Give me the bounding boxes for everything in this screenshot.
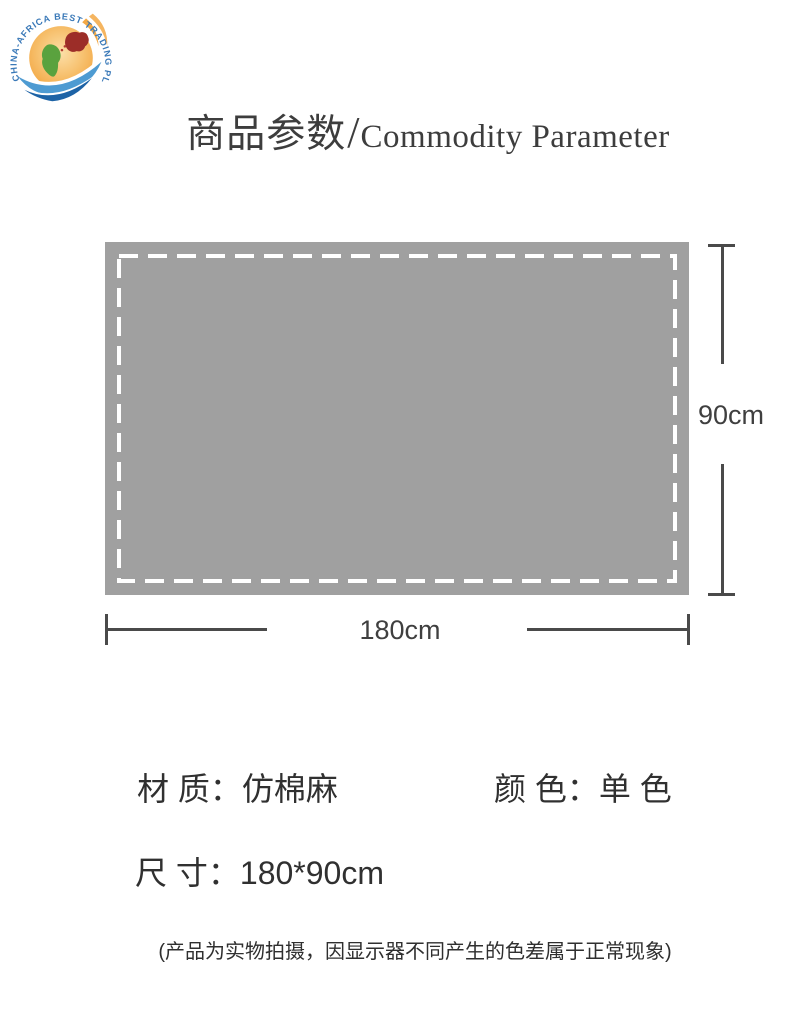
page-title-en: Commodity Parameter (361, 119, 670, 155)
spec-size-value: 180*90cm (240, 855, 384, 891)
height-dim-line-upper (721, 244, 724, 364)
route-dot-icon (64, 45, 67, 48)
page-title-zh: 商品参数 (186, 113, 346, 156)
spec-color: 颜 色：单 色 (494, 771, 672, 807)
stitch-border (105, 242, 689, 595)
width-dim-line-right (527, 628, 687, 631)
spec-color-label: 颜 色： (494, 771, 599, 807)
spec-size: 尺 寸：180*90cm (135, 855, 384, 891)
width-dim-line-left (105, 628, 267, 631)
spec-color-value: 单 色 (599, 771, 672, 807)
width-dim-label: 180cm (340, 616, 460, 644)
fabric-swatch (105, 242, 689, 595)
spec-material: 材 质：仿棉麻 (137, 771, 338, 807)
title-separator: / (347, 108, 359, 157)
platform-logo-emblem: CHINA-AFRICA BEST TRADING PLATFORM (8, 2, 114, 108)
width-dim-right-cap (687, 614, 690, 645)
spec-material-value: 仿棉麻 (242, 771, 338, 807)
page-title: 商品参数/Commodity Parameter (0, 103, 800, 159)
height-dim-line-lower (721, 464, 724, 596)
height-dim-label: 90cm (698, 401, 758, 429)
height-dim-bottom-cap (708, 593, 735, 596)
product-parameter-page: CHINA-AFRICA BEST TRADING PLATFORM 商品参数/… (0, 0, 800, 1027)
spec-material-label: 材 质： (137, 771, 242, 807)
platform-logo: CHINA-AFRICA BEST TRADING PLATFORM (8, 2, 114, 108)
dashed-stitch-line (119, 256, 675, 581)
disclaimer-note: (产品为实物拍摄，因显示器不同产生的色差属于正常现象) (0, 939, 800, 965)
spec-size-label: 尺 寸： (135, 855, 240, 891)
route-dot-icon (61, 49, 64, 52)
